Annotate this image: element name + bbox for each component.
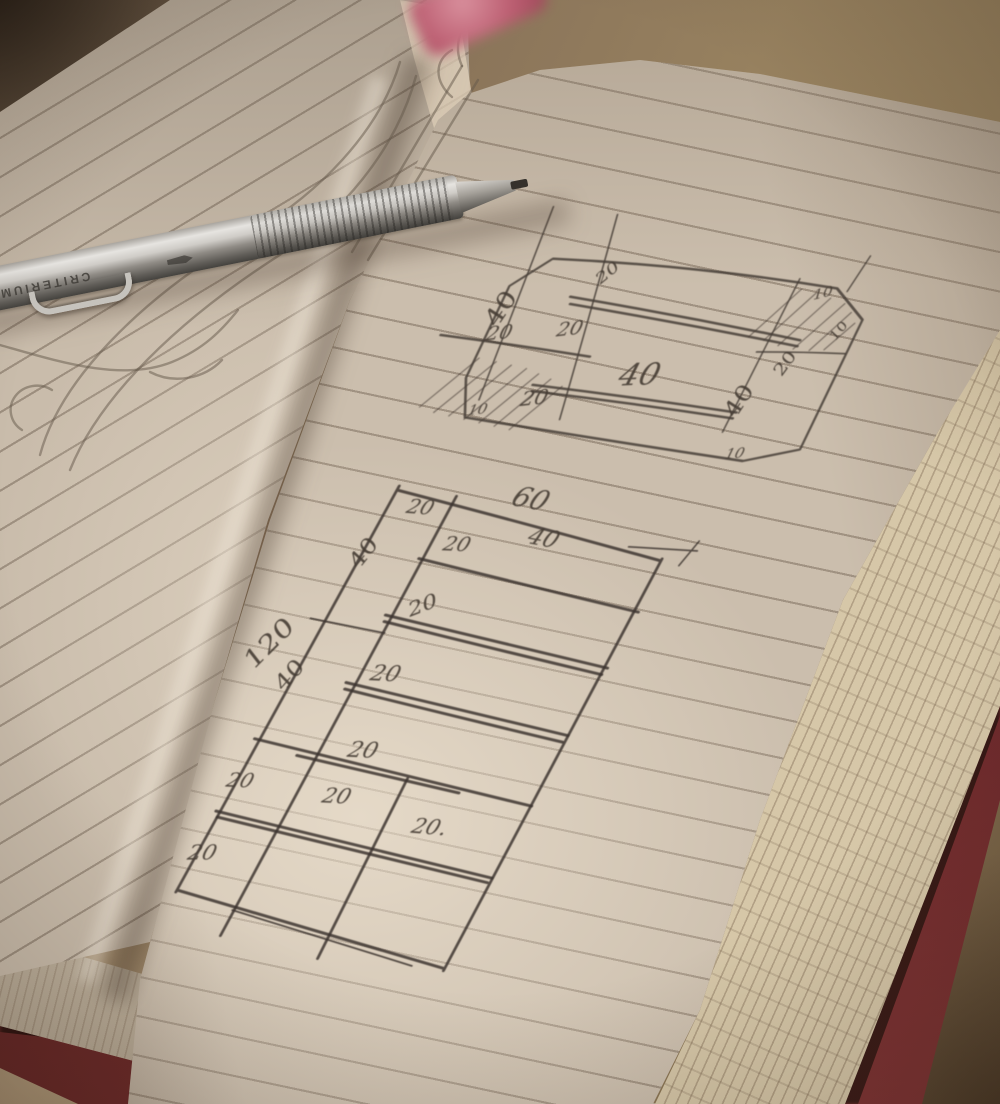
pencil-lead <box>510 179 528 190</box>
pencil-tip-cone <box>455 170 518 213</box>
notebook-photo: 40 20 20 20 40 20 10 40 10 10 10 20 <box>0 0 1000 1104</box>
